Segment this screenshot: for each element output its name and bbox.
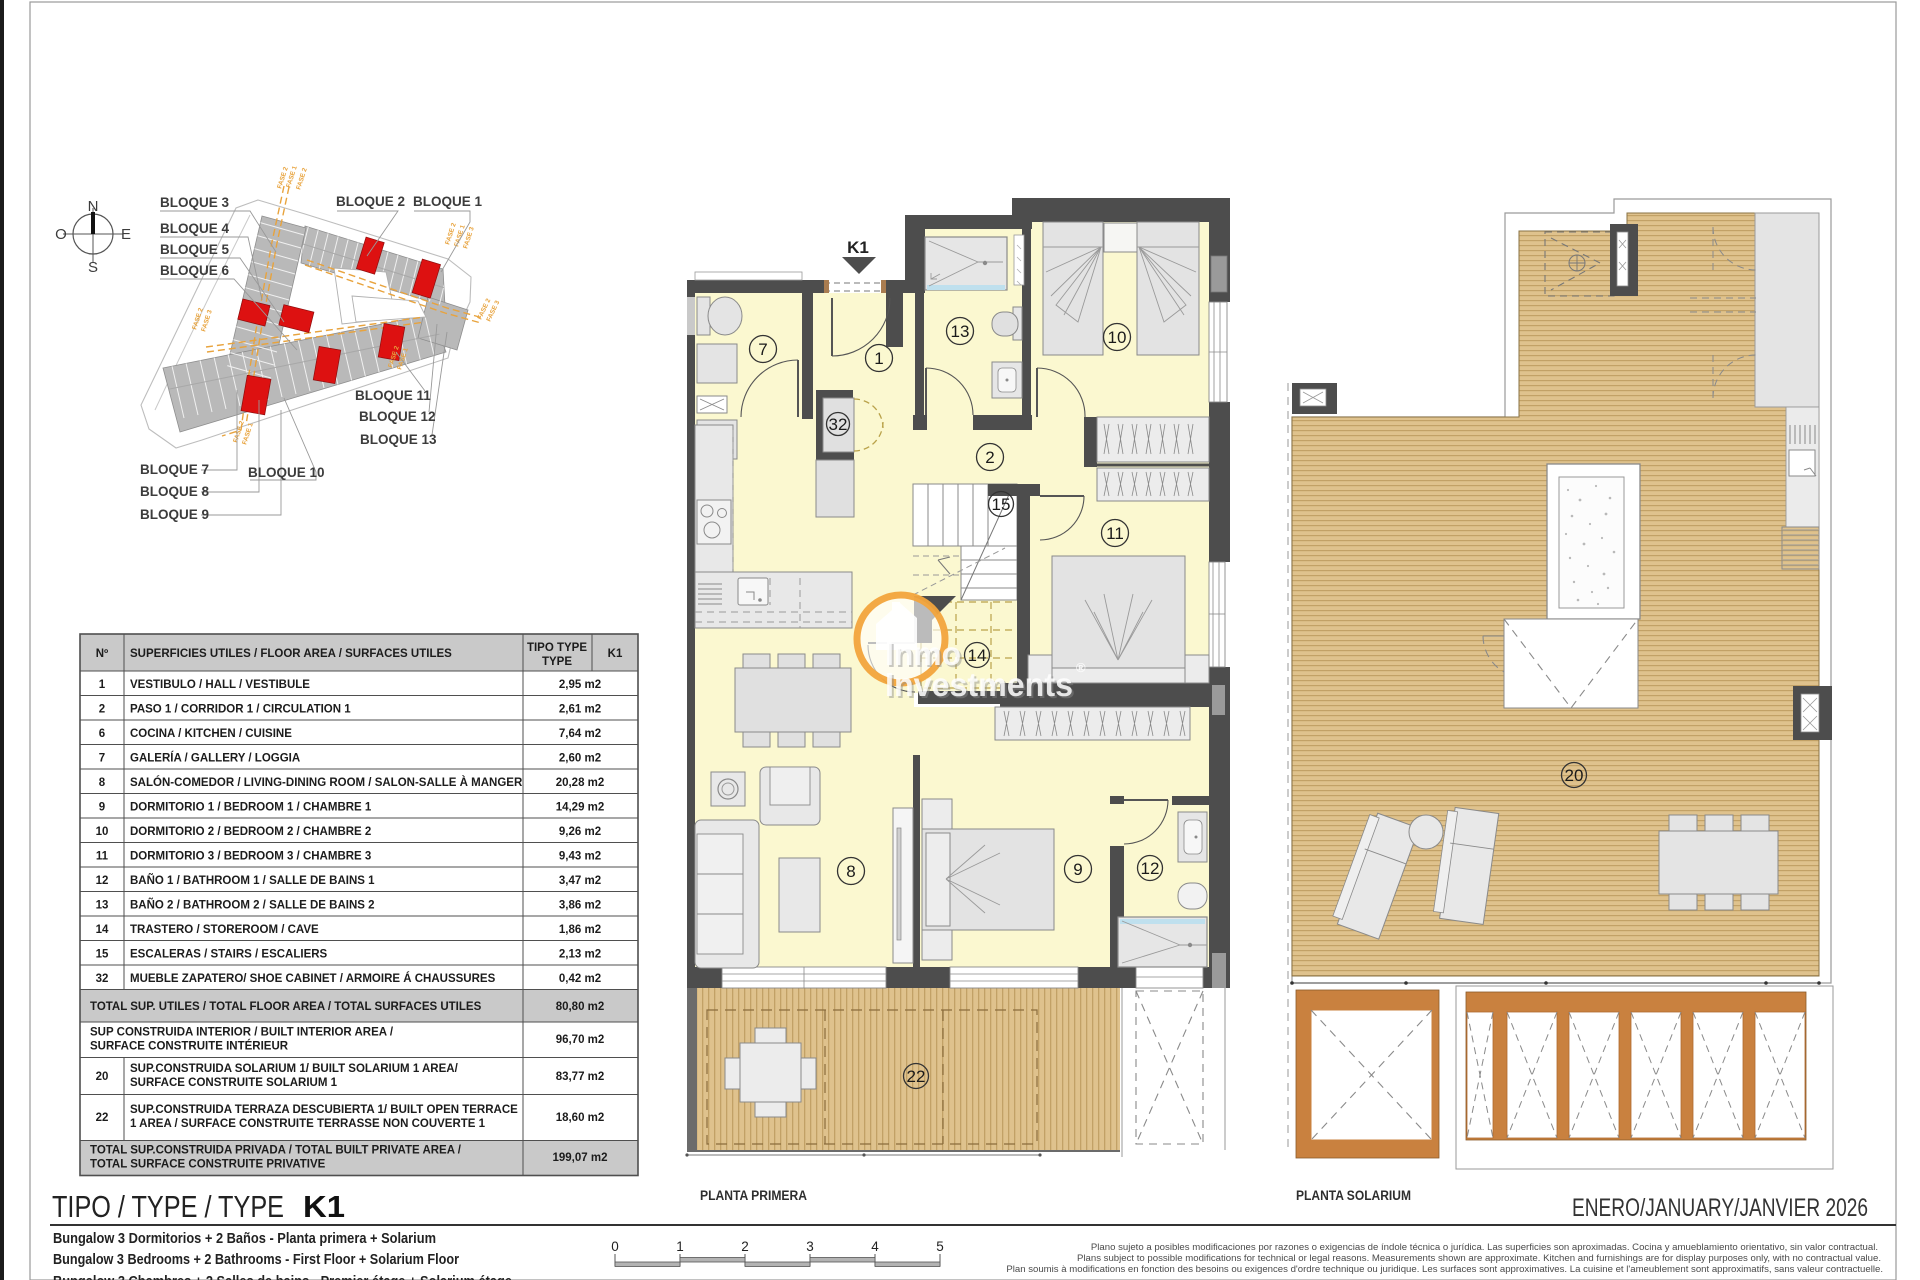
svg-text:BLOQUE 9: BLOQUE 9 xyxy=(140,507,209,522)
svg-text:3: 3 xyxy=(806,1239,814,1254)
svg-text:O: O xyxy=(55,226,67,243)
svg-text:TIPO / TYPE / TYPE: TIPO / TYPE / TYPE xyxy=(52,1189,284,1224)
svg-text:32: 32 xyxy=(829,415,848,434)
svg-text:Bungalow 3 Bedrooms + 2 Bathro: Bungalow 3 Bedrooms + 2 Bathrooms - Firs… xyxy=(53,1252,459,1268)
svg-text:1: 1 xyxy=(676,1239,684,1254)
svg-text:9: 9 xyxy=(99,802,105,814)
svg-text:2,13 m2: 2,13 m2 xyxy=(559,949,601,961)
svg-text:BAÑO 1 / BATHROOM 1 / SALLE DE: BAÑO 1 / BATHROOM 1 / SALLE DE BAINS 1 xyxy=(130,874,375,887)
svg-text:TOTAL SUP. UTILES / TOTAL FLOO: TOTAL SUP. UTILES / TOTAL FLOOR AREA / T… xyxy=(90,1001,482,1013)
svg-text:Bungalow 3 Chambres + 2 Salles: Bungalow 3 Chambres + 2 Salles de bains … xyxy=(53,1274,512,1280)
svg-text:ESCALERAS / STAIRS / ESCALIERS: ESCALERAS / STAIRS / ESCALIERS xyxy=(130,949,328,961)
svg-text:20: 20 xyxy=(96,1071,109,1083)
svg-text:BLOQUE 8: BLOQUE 8 xyxy=(140,484,210,499)
svg-text:6: 6 xyxy=(99,728,105,740)
svg-text:1: 1 xyxy=(874,349,883,368)
svg-text:0: 0 xyxy=(611,1239,619,1254)
svg-text:Plan soumis à modifications en: Plan soumis à modifications en fonction … xyxy=(1006,1264,1883,1275)
svg-text:0,42 m2: 0,42 m2 xyxy=(559,973,601,985)
svg-text:32: 32 xyxy=(96,973,109,985)
svg-text:96,70 m2: 96,70 m2 xyxy=(556,1034,605,1046)
svg-text:BLOQUE 12: BLOQUE 12 xyxy=(359,409,436,424)
svg-text:11: 11 xyxy=(1106,524,1124,543)
svg-text:Bungalow 3 Dormitorios + 2 Bañ: Bungalow 3 Dormitorios + 2 Baños - Plant… xyxy=(53,1231,436,1247)
svg-text:Plano sujeto a posibles modifi: Plano sujeto a posibles modificaciones p… xyxy=(1091,1242,1878,1253)
svg-text:BLOQUE 11: BLOQUE 11 xyxy=(355,388,431,403)
svg-text:COCINA / KITCHEN / CUISINE: COCINA / KITCHEN / CUISINE xyxy=(130,728,292,740)
svg-text:DORMITORIO 1 / BEDROOM 1 / CHA: DORMITORIO 1 / BEDROOM 1 / CHAMBRE 1 xyxy=(130,802,372,814)
svg-text:14,29 m2: 14,29 m2 xyxy=(556,802,605,814)
svg-text:7,64 m2: 7,64 m2 xyxy=(559,728,601,740)
svg-text:7: 7 xyxy=(99,753,105,765)
svg-text:BLOQUE 2: BLOQUE 2 xyxy=(336,194,405,209)
svg-text:TOTAL SURFACE CONSTRUITE PRIVA: TOTAL SURFACE CONSTRUITE PRIVATIVE xyxy=(90,1159,326,1171)
svg-text:SUP CONSTRUIDA INTERIOR / BUIL: SUP CONSTRUIDA INTERIOR / BUILT INTERIOR… xyxy=(90,1027,394,1039)
svg-text:18,60 m2: 18,60 m2 xyxy=(556,1112,605,1124)
svg-text:9,43 m2: 9,43 m2 xyxy=(559,851,601,863)
svg-text:K1: K1 xyxy=(847,238,869,257)
svg-text:SUPERFICIES UTILES / FLOOR ARE: SUPERFICIES UTILES / FLOOR AREA / SURFAC… xyxy=(130,648,452,660)
svg-text:11: 11 xyxy=(96,851,109,863)
svg-text:3,86 m2: 3,86 m2 xyxy=(559,900,601,912)
svg-text:BAÑO 2 / BATHROOM 2 / SALLE DE: BAÑO 2 / BATHROOM 2 / SALLE DE BAINS 2 xyxy=(130,899,375,912)
svg-text:Investments: Investments xyxy=(885,666,1073,703)
svg-text:1,86 m2: 1,86 m2 xyxy=(559,924,601,936)
svg-text:Nº: Nº xyxy=(96,648,109,660)
svg-text:PLANTA PRIMERA: PLANTA PRIMERA xyxy=(700,1188,807,1203)
svg-text:K1: K1 xyxy=(608,648,623,660)
svg-text:DORMITORIO 2 / BEDROOM 2 / CHA: DORMITORIO 2 / BEDROOM 2 / CHAMBRE 2 xyxy=(130,826,371,838)
svg-text:1: 1 xyxy=(99,679,106,691)
svg-text:2,61 m2: 2,61 m2 xyxy=(559,704,601,716)
svg-text:10: 10 xyxy=(96,826,109,838)
svg-text:MUEBLE ZAPATERO/ SHOE CABINET: MUEBLE ZAPATERO/ SHOE CABINET / ARMOIRE … xyxy=(130,972,496,985)
svg-text:20,28 m2: 20,28 m2 xyxy=(556,777,605,789)
svg-text:SUP.CONSTRUIDA TERRAZA DESCUBI: SUP.CONSTRUIDA TERRAZA DESCUBIERTA 1/ BU… xyxy=(130,1104,518,1116)
svg-text:TIPO TYPE: TIPO TYPE xyxy=(527,642,587,654)
svg-text:SALÓN-COMEDOR / LIVING-DINING: SALÓN-COMEDOR / LIVING-DINING ROOM / SAL… xyxy=(130,776,523,789)
svg-text:BLOQUE 4: BLOQUE 4 xyxy=(160,221,230,236)
svg-text:BLOQUE 7: BLOQUE 7 xyxy=(140,462,209,477)
svg-text:BLOQUE 10: BLOQUE 10 xyxy=(248,465,325,480)
svg-text:GALERÍA / GALLERY / LOGGIA: GALERÍA / GALLERY / LOGGIA xyxy=(130,752,300,765)
svg-text:TRASTERO / STOREROOM / CAVE: TRASTERO / STOREROOM / CAVE xyxy=(130,924,319,936)
svg-text:®: ® xyxy=(1076,660,1086,675)
svg-text:8: 8 xyxy=(846,862,855,881)
svg-text:K1: K1 xyxy=(303,1189,345,1224)
svg-text:Plans subject to possible modi: Plans subject to possible modifications … xyxy=(1077,1253,1881,1264)
svg-text:2: 2 xyxy=(985,448,994,467)
svg-text:BLOQUE 6: BLOQUE 6 xyxy=(160,263,230,278)
svg-text:2: 2 xyxy=(99,704,105,716)
svg-text:22: 22 xyxy=(907,1067,926,1086)
svg-text:10: 10 xyxy=(1108,328,1127,347)
svg-text:8: 8 xyxy=(99,777,106,789)
svg-text:TYPE: TYPE xyxy=(542,656,572,668)
svg-text:SUP.CONSTRUIDA SOLARIUM 1/ BUI: SUP.CONSTRUIDA SOLARIUM 1/ BUILT SOLARIU… xyxy=(130,1063,459,1075)
svg-text:VESTIBULO / HALL / VESTIBULE: VESTIBULO / HALL / VESTIBULE xyxy=(130,679,310,691)
svg-text:1 AREA / SURFACE CONSTRUITE TE: 1 AREA / SURFACE CONSTRUITE TERRASSE NON… xyxy=(130,1118,486,1130)
svg-text:PASO 1 / CORRIDOR 1 / CIRCUL: PASO 1 / CORRIDOR 1 / CIRCULATION 1 xyxy=(130,704,351,716)
svg-text:BLOQUE 1: BLOQUE 1 xyxy=(413,194,483,209)
svg-text:SURFACE CONSTRUITE INTÉRIEUR: SURFACE CONSTRUITE INTÉRIEUR xyxy=(90,1040,289,1053)
svg-text:14: 14 xyxy=(968,646,987,665)
svg-text:PLANTA SOLARIUM: PLANTA SOLARIUM xyxy=(1296,1188,1411,1203)
svg-text:TOTAL SUP.CONSTRUIDA PRIVADA /: TOTAL SUP.CONSTRUIDA PRIVADA / TOTAL BUI… xyxy=(90,1145,462,1157)
svg-text:7: 7 xyxy=(758,340,767,359)
svg-text:13: 13 xyxy=(96,900,109,912)
svg-text:12: 12 xyxy=(1141,859,1160,878)
svg-text:13: 13 xyxy=(951,322,970,341)
svg-text:14: 14 xyxy=(96,924,109,936)
svg-text:22: 22 xyxy=(96,1112,109,1124)
svg-text:N: N xyxy=(88,198,99,215)
svg-text:BLOQUE 3: BLOQUE 3 xyxy=(160,195,230,210)
svg-text:DORMITORIO 3 / BEDROOM 3 / CHA: DORMITORIO 3 / BEDROOM 3 / CHAMBRE 3 xyxy=(130,851,371,863)
svg-text:15: 15 xyxy=(992,495,1011,514)
svg-text:3,47 m2: 3,47 m2 xyxy=(559,875,601,887)
svg-text:9,26 m2: 9,26 m2 xyxy=(559,826,601,838)
svg-text:S: S xyxy=(88,259,98,276)
svg-text:15: 15 xyxy=(96,949,109,961)
svg-text:80,80 m2: 80,80 m2 xyxy=(556,1001,605,1013)
svg-text:BLOQUE 13: BLOQUE 13 xyxy=(360,432,437,447)
svg-text:E: E xyxy=(121,226,131,243)
svg-text:SURFACE CONSTRUITE SOLARIUM 1: SURFACE CONSTRUITE SOLARIUM 1 xyxy=(130,1077,338,1089)
svg-text:83,77 m2: 83,77 m2 xyxy=(556,1071,605,1083)
svg-text:20: 20 xyxy=(1565,766,1584,785)
svg-text:199,07 m2: 199,07 m2 xyxy=(553,1152,608,1164)
svg-text:2,60 m2: 2,60 m2 xyxy=(559,753,601,765)
svg-text:BLOQUE 5: BLOQUE 5 xyxy=(160,242,230,257)
svg-text:4: 4 xyxy=(871,1239,879,1254)
svg-text:2: 2 xyxy=(741,1239,749,1254)
svg-text:ENERO/JANUARY/JANVIER 2026: ENERO/JANUARY/JANVIER 2026 xyxy=(1572,1194,1868,1222)
svg-text:2,95 m2: 2,95 m2 xyxy=(559,679,601,691)
svg-text:12: 12 xyxy=(96,875,109,887)
svg-text:5: 5 xyxy=(936,1239,944,1254)
svg-text:9: 9 xyxy=(1073,860,1082,879)
